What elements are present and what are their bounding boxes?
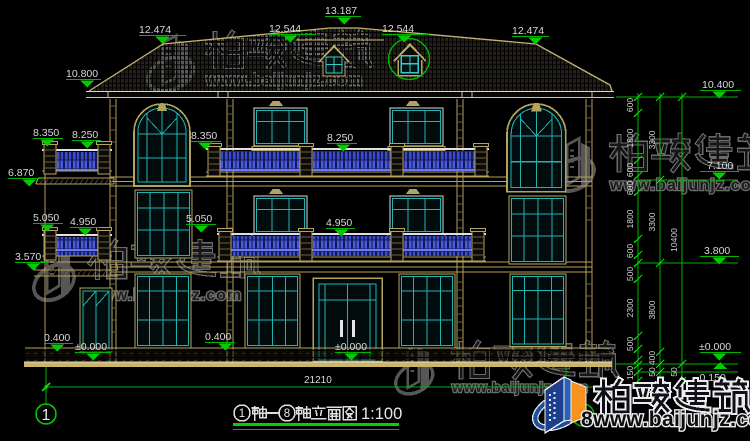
svg-text:0.400: 0.400: [205, 331, 231, 343]
svg-text:1: 1: [42, 407, 51, 424]
svg-text:7.100: 7.100: [707, 160, 733, 172]
svg-text:10.400: 10.400: [702, 79, 734, 91]
svg-text:500: 500: [625, 267, 635, 281]
svg-text:8www.baijunjz.com: 8www.baijunjz.com: [581, 408, 750, 431]
svg-text:3300: 3300: [647, 212, 657, 231]
svg-text:500: 500: [625, 337, 635, 351]
svg-text:5.050: 5.050: [186, 213, 212, 225]
svg-text:8.350: 8.350: [33, 127, 59, 139]
svg-text:2300: 2300: [625, 298, 635, 317]
svg-text:600: 600: [625, 163, 635, 177]
svg-text:6.870: 6.870: [8, 167, 34, 179]
svg-text:10400: 10400: [669, 228, 679, 252]
svg-text:5.050: 5.050: [33, 212, 59, 224]
svg-text:1800: 1800: [625, 128, 635, 147]
svg-text:10.800: 10.800: [66, 68, 98, 80]
svg-text:1:100: 1:100: [361, 405, 402, 423]
svg-text:±0.000: ±0.000: [699, 341, 731, 353]
svg-text:12.474: 12.474: [139, 24, 171, 36]
svg-text:8.250: 8.250: [327, 132, 353, 144]
svg-text:50: 50: [669, 367, 679, 377]
svg-text:8: 8: [284, 408, 290, 420]
svg-text:3800: 3800: [647, 300, 657, 319]
svg-text:150: 150: [625, 366, 635, 380]
svg-text:12.544: 12.544: [269, 23, 301, 35]
svg-text:400: 400: [647, 351, 657, 365]
svg-text:3.570: 3.570: [15, 251, 41, 263]
svg-text:0.400: 0.400: [44, 332, 70, 344]
svg-text:600: 600: [625, 98, 635, 112]
svg-text:600: 600: [625, 181, 635, 195]
svg-text:3300: 3300: [647, 130, 657, 149]
svg-text:8.250: 8.250: [72, 129, 98, 141]
svg-text:4.950: 4.950: [326, 217, 352, 229]
svg-text:3.800: 3.800: [704, 245, 730, 257]
svg-text:50: 50: [647, 367, 657, 377]
svg-text:8.350: 8.350: [191, 130, 217, 142]
svg-text:12.544: 12.544: [382, 23, 414, 35]
svg-text:±0.000: ±0.000: [75, 341, 107, 353]
svg-text:12.474: 12.474: [512, 25, 544, 37]
svg-text:600: 600: [625, 244, 635, 258]
svg-text:1800: 1800: [625, 209, 635, 228]
svg-text:21210: 21210: [304, 375, 332, 386]
svg-text:13.187: 13.187: [325, 5, 357, 17]
svg-text:±0.000: ±0.000: [335, 341, 367, 353]
svg-text:1: 1: [239, 408, 245, 420]
svg-text:4.950: 4.950: [70, 216, 96, 228]
